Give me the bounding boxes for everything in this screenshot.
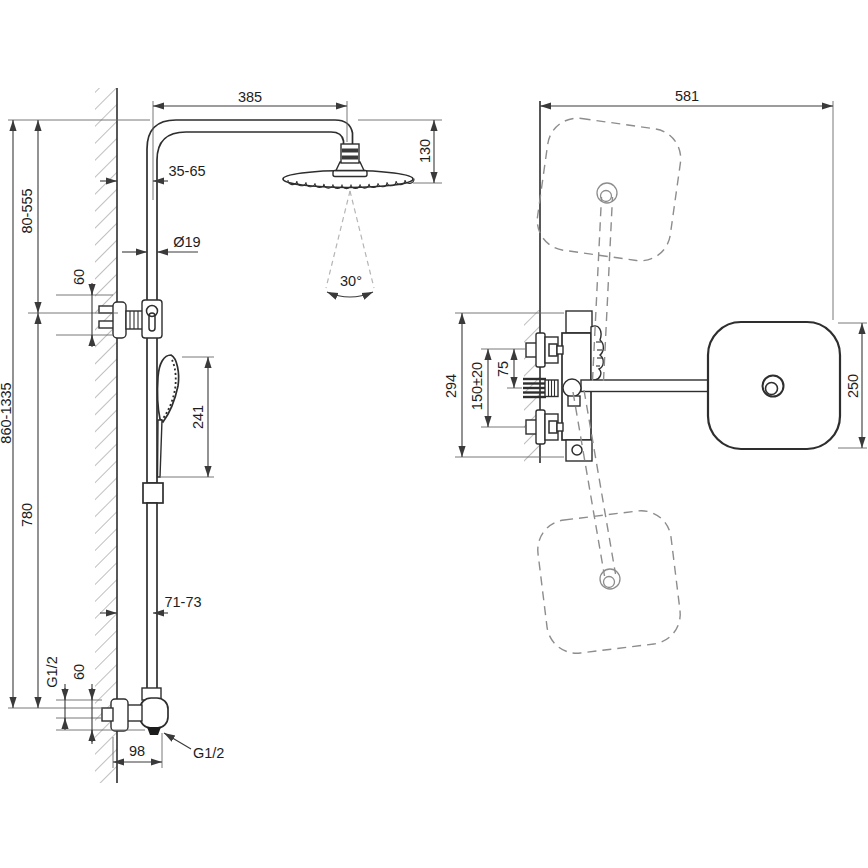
nut-band xyxy=(342,156,358,160)
label-head-height: 130 xyxy=(417,139,433,163)
label-inlet-thread: G1/2 xyxy=(44,656,60,687)
label-spray-angle: 30° xyxy=(340,273,362,289)
slider-block xyxy=(143,483,163,503)
label-inlet-offset: 60 xyxy=(71,664,87,680)
swivel-position-down xyxy=(534,507,683,656)
label-outlet-thread: G1/2 xyxy=(193,745,224,761)
label-arm-length: 385 xyxy=(238,89,262,105)
label-mixer-height: 294 xyxy=(443,374,459,398)
label-total-reach: 581 xyxy=(675,88,699,104)
label-wall-to-column-bottom: 71-73 xyxy=(164,594,201,610)
hand-shower-profile xyxy=(591,326,603,380)
head-flange xyxy=(333,171,367,177)
dashed-head-up xyxy=(533,114,684,264)
label-hand-shower-length: 241 xyxy=(190,405,206,429)
hand-shower-handle xyxy=(158,420,163,477)
arm-pivot xyxy=(563,379,581,397)
valve-body xyxy=(140,698,168,728)
label-handle-to-arm: 75 xyxy=(495,361,511,377)
label-total-height: 860-1335 xyxy=(0,382,14,443)
label-bar-length: 780 xyxy=(19,503,35,527)
wall-hatch xyxy=(95,88,117,783)
label-column-diameter: Ø19 xyxy=(173,234,200,250)
front-view: 385 130 35-65 Ø19 60 80-555 860-1335 780… xyxy=(0,88,442,783)
overhead-shower-head xyxy=(283,144,414,189)
side-view: 581 294 150±20 75 250 xyxy=(443,88,867,657)
label-inlet-spacing: 150±20 xyxy=(469,362,485,410)
valve-wall-pin xyxy=(102,708,113,721)
outlet-leader-line xyxy=(164,733,191,749)
lower-tube xyxy=(147,503,157,689)
bracket-wall-plate xyxy=(113,302,126,338)
swivel-position-up xyxy=(533,114,684,264)
valve-outlet xyxy=(147,727,161,735)
nut-band xyxy=(342,149,358,153)
label-head-width: 250 xyxy=(845,374,861,398)
label-wall-to-column-top: 35-65 xyxy=(168,163,205,179)
hand-shower xyxy=(157,355,178,477)
spray-angle-arc xyxy=(327,292,373,297)
label-mixer-depth: 98 xyxy=(129,743,145,759)
dashed-head-down xyxy=(534,507,683,656)
label-bracket-range: 80-555 xyxy=(19,188,35,233)
fixture-bottom-block xyxy=(566,440,592,461)
head-nut xyxy=(341,144,359,163)
label-bracket-offset: 60 xyxy=(71,269,87,285)
fixture-top-block xyxy=(566,311,592,333)
shower-system-technical-drawing: 385 130 35-65 Ø19 60 80-555 860-1335 780… xyxy=(0,0,868,868)
side-head-top-view xyxy=(708,322,840,449)
drawing-canvas: 385 130 35-65 Ø19 60 80-555 860-1335 780… xyxy=(0,0,868,868)
valve-arm xyxy=(127,705,142,721)
